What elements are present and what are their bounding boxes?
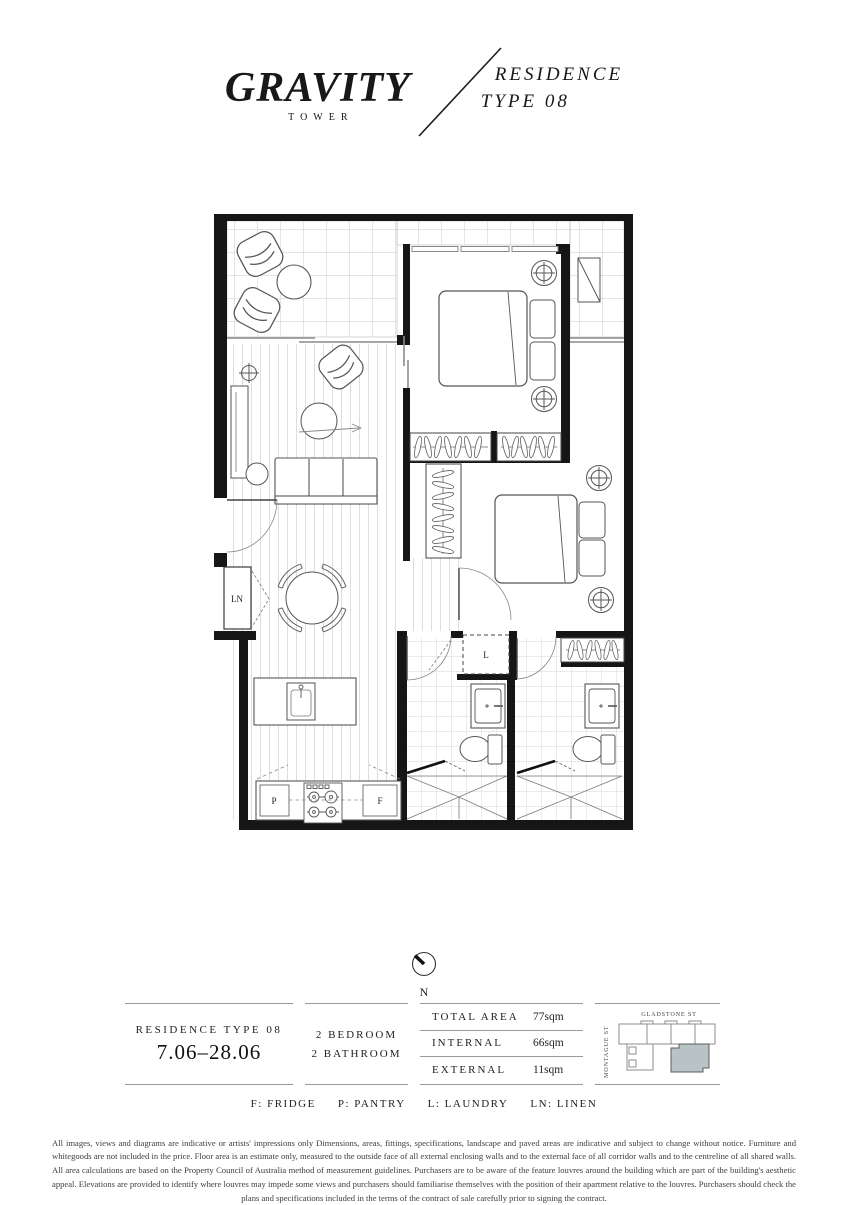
robe-bath2 [561, 638, 624, 662]
laundry-label: L [483, 650, 489, 660]
vanity [471, 684, 505, 728]
residence-title: RESIDENCE TYPE 08 [125, 1024, 293, 1036]
brand-name: GRAVITY [225, 67, 411, 109]
robe-bed1 [410, 433, 561, 461]
downlight-icon [587, 466, 612, 491]
residence-levels: 7.06–28.06 [125, 1040, 293, 1065]
bedroom-1 [410, 261, 561, 462]
brand-subtitle: TOWER [225, 112, 411, 123]
toilet [573, 735, 615, 764]
bed-2 [495, 495, 605, 583]
area-label: INTERNAL [432, 1037, 503, 1049]
brand-block: GRAVITY TOWER [225, 67, 411, 123]
legend-item: P: PANTRY [338, 1098, 406, 1110]
pantry-label: P [271, 796, 276, 806]
downlight-icon [532, 387, 557, 412]
area-value: 66sqm [533, 1037, 577, 1049]
kitchen-island [254, 678, 356, 725]
compass-needle-icon [415, 956, 424, 965]
linen-label: LN [231, 594, 243, 604]
tv-unit [231, 386, 248, 478]
fridge-label: F [377, 796, 382, 806]
downlight-icon [532, 261, 557, 286]
street-top-label: GLADSTONE ST [641, 1011, 696, 1018]
cooktop [304, 783, 342, 823]
robe-bed2 [426, 464, 461, 558]
balcony-unit [578, 258, 600, 302]
residence-column: RESIDENCE TYPE 08 7.06–28.06 [125, 1003, 293, 1085]
toilet [460, 735, 502, 764]
legend-item: LN: LINEN [530, 1098, 597, 1110]
area-row: TOTAL AREA 77sqm [420, 1004, 583, 1031]
highlighted-unit [671, 1044, 709, 1072]
ottoman [301, 403, 337, 439]
residence-line1: RESIDENCE [495, 62, 623, 89]
bedroom-count: 2 BEDROOM [305, 1026, 408, 1045]
dining [275, 561, 348, 634]
north-label: N [420, 985, 429, 999]
bed-1 [439, 291, 555, 386]
area-row: INTERNAL 66sqm [420, 1031, 583, 1058]
balcony-table [277, 265, 311, 299]
legend-item: L: LAUNDRY [428, 1098, 509, 1110]
north-compass: N [402, 948, 446, 1000]
area-row: EXTERNAL 11sqm [420, 1057, 583, 1084]
vanity [585, 684, 619, 728]
legend-item: F: FRIDGE [251, 1098, 316, 1110]
abbreviation-legend: F: FRIDGE P: PANTRY L: LAUNDRY LN: LINEN [0, 1094, 848, 1112]
area-value: 11sqm [533, 1064, 577, 1076]
bathroom-count: 2 BATHROOM [305, 1045, 408, 1064]
floor-plan: LN P F [211, 206, 641, 844]
info-strip: RESIDENCE TYPE 08 7.06–28.06 2 BEDROOM 2… [0, 1003, 848, 1087]
area-label: TOTAL AREA [432, 1011, 519, 1023]
side-table [246, 463, 268, 485]
residence-type-block: RESIDENCE TYPE 08 [495, 62, 623, 115]
dining-table [286, 572, 338, 624]
area-label: EXTERNAL [432, 1064, 506, 1076]
disclaimer-text: All images, views and diagrams are indic… [52, 1137, 796, 1205]
area-value: 77sqm [533, 1011, 577, 1023]
areas-table: TOTAL AREA 77sqm INTERNAL 66sqm EXTERNAL… [420, 1003, 583, 1085]
config-column: 2 BEDROOM 2 BATHROOM [305, 1003, 408, 1085]
street-left-label: MONTAGUE ST [603, 1026, 610, 1078]
residence-line2: TYPE 08 [481, 89, 623, 116]
building-keyplan: GLADSTONE ST MONTAGUE ST [595, 1004, 720, 1084]
logo: GRAVITY TOWER RESIDENCE TYPE 08 [0, 44, 848, 140]
downlight-icon [589, 588, 614, 613]
keyplan-column: GLADSTONE ST MONTAGUE ST [595, 1003, 720, 1085]
sofa [275, 458, 377, 504]
flyer-page: GRAVITY TOWER RESIDENCE TYPE 08 [0, 0, 848, 1200]
